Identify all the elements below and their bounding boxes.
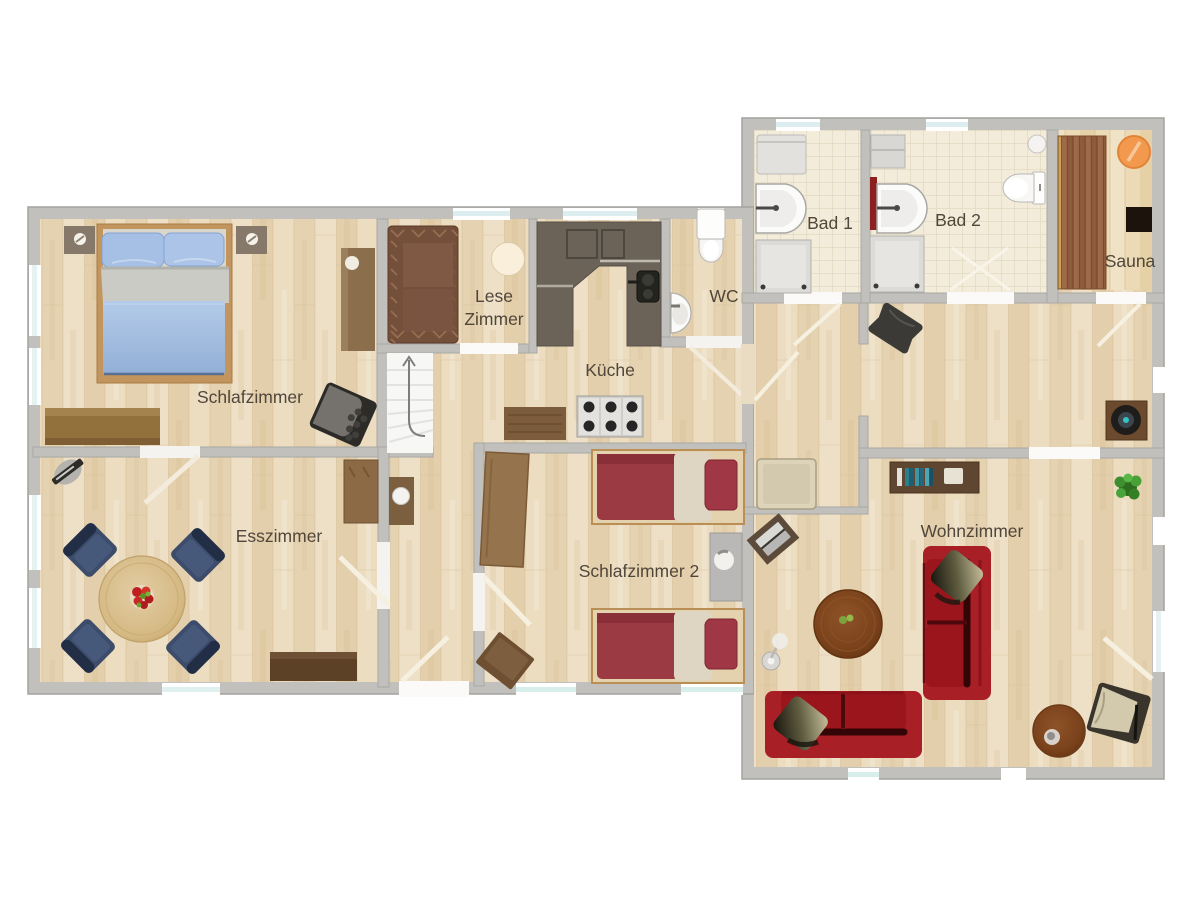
svg-text:Esszimmer: Esszimmer xyxy=(236,526,323,546)
svg-text:Lese: Lese xyxy=(475,286,513,306)
svg-text:Sauna: Sauna xyxy=(1105,251,1156,271)
svg-text:Schlafzimmer 2: Schlafzimmer 2 xyxy=(579,561,700,581)
svg-text:Schlafzimmer: Schlafzimmer xyxy=(197,387,303,407)
svg-text:Zimmer: Zimmer xyxy=(464,309,523,329)
svg-text:Küche: Küche xyxy=(585,360,635,380)
svg-text:Bad 1: Bad 1 xyxy=(807,213,853,233)
svg-text:Wohnzimmer: Wohnzimmer xyxy=(921,521,1024,541)
svg-text:Bad 2: Bad 2 xyxy=(935,210,981,230)
svg-text:WC: WC xyxy=(709,286,738,306)
